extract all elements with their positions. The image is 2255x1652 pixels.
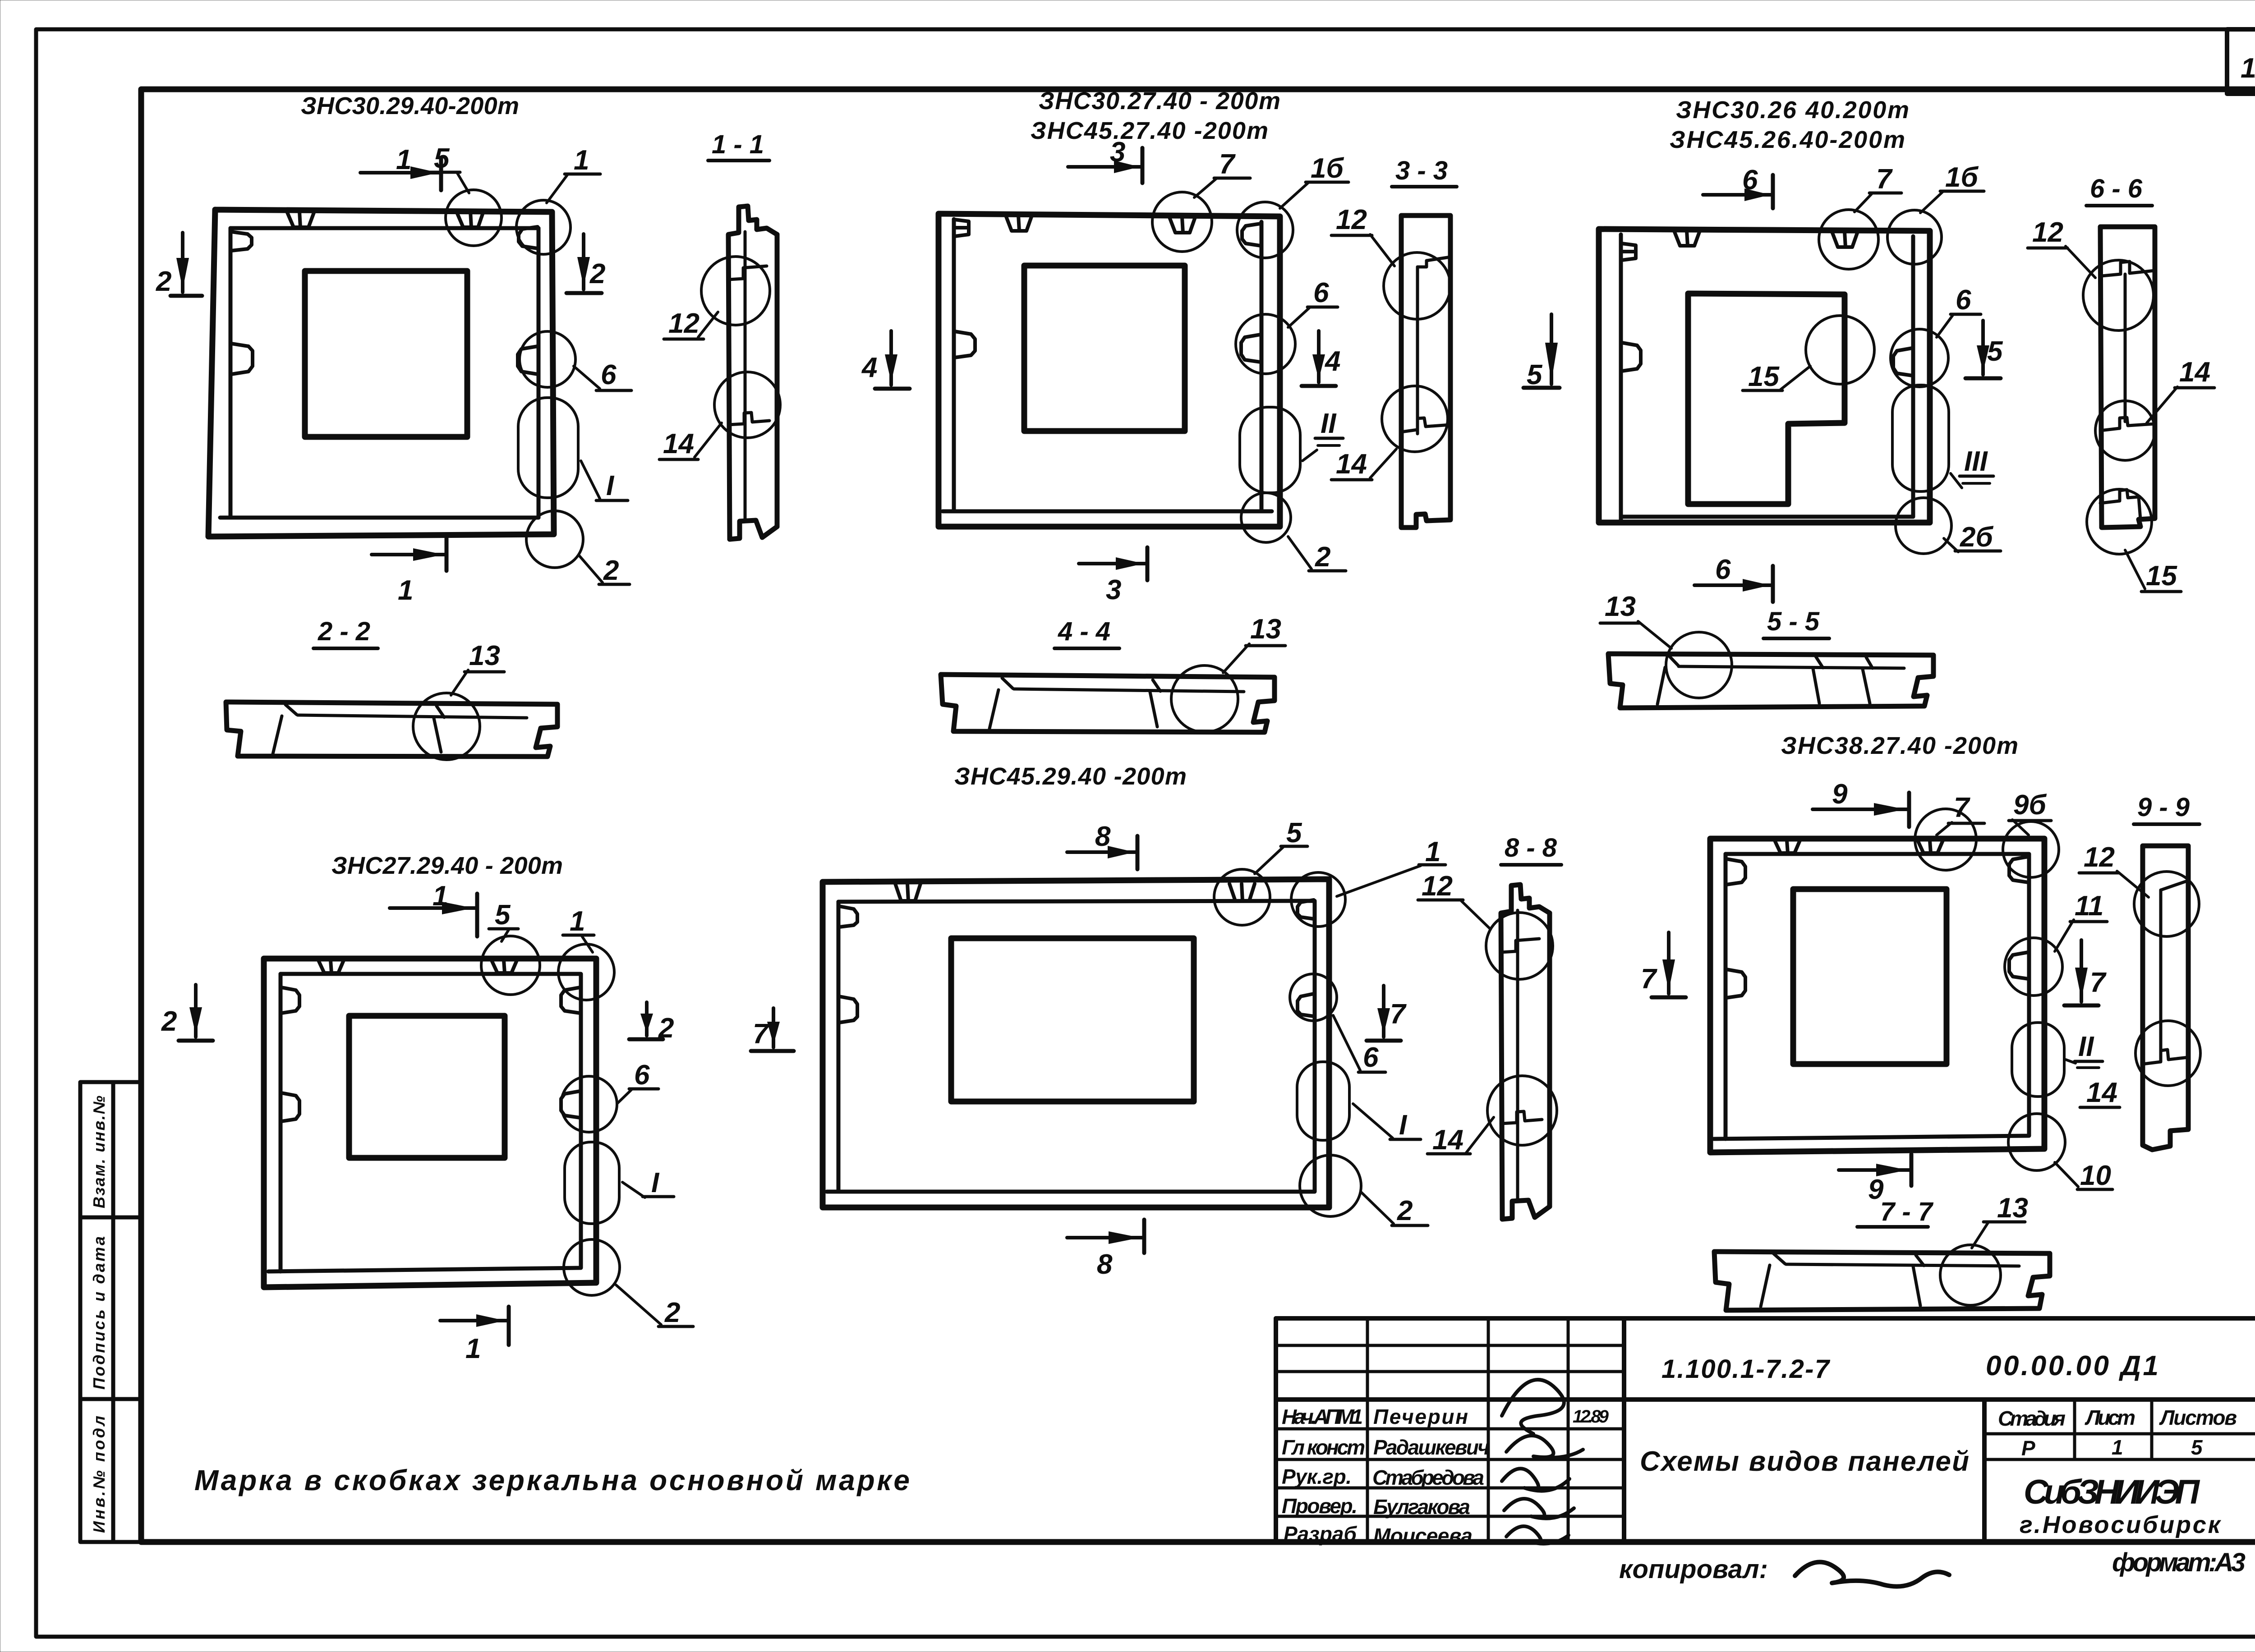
svg-text:6: 6 bbox=[634, 1060, 650, 1091]
svg-text:1: 1 bbox=[1425, 836, 1440, 867]
svg-text:14: 14 bbox=[2179, 357, 2210, 388]
svg-text:9 - 9: 9 - 9 bbox=[2137, 793, 2190, 822]
svg-text:СибЗНИИЭП: СибЗНИИЭП bbox=[2024, 1473, 2200, 1511]
svg-text:6 - 6: 6 - 6 bbox=[2090, 174, 2143, 203]
svg-text:2: 2 bbox=[664, 1297, 680, 1328]
svg-text:14: 14 bbox=[2086, 1077, 2117, 1108]
svg-text:12.89: 12.89 bbox=[1573, 1407, 1609, 1427]
svg-text:4 - 4: 4 - 4 bbox=[1058, 617, 1110, 646]
svg-text:3: 3 bbox=[1110, 137, 1125, 168]
svg-text:7: 7 bbox=[1219, 149, 1236, 180]
svg-text:Стабредова: Стабредова bbox=[1372, 1466, 1484, 1489]
svg-text:1б: 1б bbox=[1945, 162, 1979, 193]
svg-text:ЗНС30.26 40.200т: ЗНС30.26 40.200т bbox=[1676, 96, 1909, 124]
svg-text:14: 14 bbox=[663, 428, 694, 459]
svg-text:12: 12 bbox=[668, 308, 700, 339]
svg-text:6: 6 bbox=[601, 359, 617, 390]
svg-text:00.00.00 Д1: 00.00.00 Д1 bbox=[1986, 1350, 2158, 1381]
svg-text:1.100.1-7.2-7: 1.100.1-7.2-7 bbox=[1661, 1354, 1831, 1384]
svg-text:7: 7 bbox=[1390, 999, 1407, 1030]
svg-text:1: 1 bbox=[570, 906, 585, 937]
svg-text:Булгакова: Булгакова bbox=[1373, 1495, 1470, 1519]
svg-text:Моисеева: Моисеева bbox=[1373, 1524, 1473, 1547]
svg-text:1б: 1б bbox=[1311, 153, 1344, 184]
svg-text:6: 6 bbox=[1313, 277, 1329, 308]
svg-text:3 - 3: 3 - 3 bbox=[1395, 156, 1448, 185]
svg-text:5: 5 bbox=[1987, 336, 2003, 367]
svg-text:2: 2 bbox=[603, 555, 619, 586]
svg-text:14: 14 bbox=[1336, 449, 1367, 480]
svg-text:7: 7 bbox=[1954, 792, 1970, 823]
svg-text:2: 2 bbox=[589, 258, 605, 289]
svg-text:11: 11 bbox=[2075, 890, 2103, 922]
svg-text:ЗНС38.27.40 -200т: ЗНС38.27.40 -200т bbox=[1781, 732, 2018, 759]
svg-text:2: 2 bbox=[156, 266, 171, 297]
svg-text:Подпись и дата: Подпись и дата bbox=[90, 1236, 108, 1390]
svg-text:2: 2 bbox=[658, 1013, 674, 1044]
svg-text:13: 13 bbox=[1997, 1193, 2028, 1224]
svg-text:III: III bbox=[1964, 446, 1988, 477]
svg-text:14: 14 bbox=[1432, 1124, 1463, 1156]
svg-text:2: 2 bbox=[1397, 1195, 1413, 1226]
svg-text:7: 7 bbox=[2090, 967, 2107, 998]
svg-text:6: 6 bbox=[1742, 165, 1758, 196]
svg-text:9: 9 bbox=[1832, 779, 1848, 810]
svg-text:15: 15 bbox=[1748, 361, 1780, 392]
svg-text:1: 1 bbox=[398, 575, 413, 606]
svg-text:Инв.№ подл: Инв.№ подл bbox=[90, 1416, 108, 1533]
svg-text:13: 13 bbox=[469, 640, 500, 671]
svg-text:ЗНС30.27.40 - 200т: ЗНС30.27.40 - 200т bbox=[1039, 87, 1280, 115]
svg-text:5: 5 bbox=[1527, 359, 1543, 390]
svg-text:3: 3 bbox=[1106, 574, 1121, 606]
svg-text:6: 6 bbox=[1956, 285, 1971, 316]
svg-text:Листов: Листов bbox=[2159, 1406, 2237, 1429]
svg-text:1: 1 bbox=[465, 1333, 481, 1364]
svg-text:8: 8 bbox=[1097, 1249, 1113, 1280]
svg-text:9б: 9б bbox=[2013, 789, 2047, 821]
svg-text:ЗНС45.26.40-200т: ЗНС45.26.40-200т bbox=[1670, 126, 1905, 153]
svg-text:12: 12 bbox=[1422, 871, 1453, 902]
svg-text:формат:А3: формат:А3 bbox=[2112, 1548, 2246, 1577]
svg-text:Стадия: Стадия bbox=[1998, 1407, 2066, 1430]
svg-text:5: 5 bbox=[1286, 817, 1302, 849]
svg-text:Нач.АПМ1: Нач.АПМ1 bbox=[1282, 1405, 1363, 1428]
svg-text:7: 7 bbox=[1641, 964, 1657, 995]
svg-text:I: I bbox=[651, 1167, 660, 1198]
svg-text:Взам. инв.№: Взам. инв.№ bbox=[90, 1096, 108, 1208]
svg-text:5: 5 bbox=[2191, 1436, 2203, 1459]
svg-text:8: 8 bbox=[1095, 821, 1111, 852]
svg-text:10: 10 bbox=[2080, 1160, 2111, 1191]
svg-text:г.Новосибирск: г.Новосибирск bbox=[2020, 1511, 2222, 1538]
svg-text:13: 13 bbox=[1250, 614, 1281, 645]
svg-text:копировал:: копировал: bbox=[1619, 1555, 1768, 1584]
svg-text:7: 7 bbox=[1876, 164, 1893, 195]
svg-text:12: 12 bbox=[1336, 204, 1367, 235]
svg-text:12: 12 bbox=[2032, 217, 2063, 248]
svg-text:4: 4 bbox=[861, 352, 877, 383]
svg-text:6: 6 bbox=[1363, 1042, 1379, 1073]
svg-text:1: 1 bbox=[396, 144, 411, 175]
svg-text:Схемы видов панелей: Схемы видов панелей bbox=[1640, 1446, 1969, 1477]
svg-text:1 - 1: 1 - 1 bbox=[712, 130, 764, 159]
svg-text:Печерин: Печерин bbox=[1373, 1405, 1468, 1428]
svg-text:4: 4 bbox=[1324, 346, 1340, 377]
svg-text:Провер.: Провер. bbox=[1282, 1494, 1358, 1518]
svg-text:I: I bbox=[606, 470, 615, 501]
svg-text:Марка в скобках зеркальна: Марка в скобках зеркальна основной марке bbox=[194, 1464, 910, 1496]
svg-text:1: 1 bbox=[433, 881, 448, 912]
svg-text:1: 1 bbox=[574, 145, 589, 176]
svg-text:2 - 2: 2 - 2 bbox=[318, 617, 370, 646]
svg-text:ЗНС30.29.40-200т: ЗНС30.29.40-200т bbox=[301, 92, 519, 119]
svg-text:ЗНС45.27.40 -200т: ЗНС45.27.40 -200т bbox=[1031, 117, 1268, 144]
svg-text:13: 13 bbox=[1605, 591, 1636, 622]
svg-text:II: II bbox=[1321, 408, 1337, 439]
svg-text:2б: 2б bbox=[1960, 522, 1993, 553]
svg-text:Лист: Лист bbox=[2085, 1406, 2135, 1429]
svg-text:I: I bbox=[1399, 1110, 1408, 1141]
svg-text:7: 7 bbox=[753, 1019, 769, 1050]
svg-text:12: 12 bbox=[2084, 842, 2115, 873]
svg-text:6: 6 bbox=[1715, 554, 1731, 585]
svg-text:Р: Р bbox=[2021, 1436, 2035, 1460]
svg-text:Гл конст: Гл конст bbox=[1282, 1436, 1365, 1459]
svg-text:11: 11 bbox=[2241, 53, 2255, 84]
svg-text:Рук.гр.: Рук.гр. bbox=[1282, 1465, 1352, 1488]
svg-text:II: II bbox=[2078, 1031, 2094, 1062]
svg-text:8 - 8: 8 - 8 bbox=[1505, 833, 1557, 863]
svg-text:1: 1 bbox=[2112, 1436, 2123, 1459]
svg-text:Разраб: Разраб bbox=[1284, 1522, 1358, 1546]
svg-text:ЗНС27.29.40 - 200т: ЗНС27.29.40 - 200т bbox=[331, 852, 563, 879]
svg-text:ЗНС45.29.40 -200т: ЗНС45.29.40 -200т bbox=[954, 763, 1187, 790]
svg-text:2: 2 bbox=[1315, 541, 1330, 573]
svg-text:7 - 7: 7 - 7 bbox=[1880, 1197, 1934, 1226]
svg-text:Радашкевич: Радашкевич bbox=[1373, 1436, 1490, 1459]
svg-text:5: 5 bbox=[495, 899, 511, 931]
svg-text:2: 2 bbox=[161, 1006, 177, 1037]
svg-text:5 - 5: 5 - 5 bbox=[1767, 607, 1820, 636]
svg-text:15: 15 bbox=[2146, 560, 2177, 592]
